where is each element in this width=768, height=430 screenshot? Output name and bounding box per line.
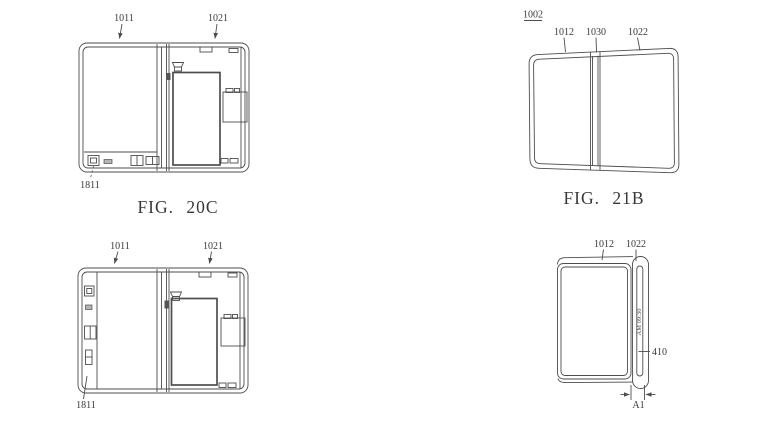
folding-line-1030 bbox=[591, 52, 601, 171]
device-outer-housing bbox=[78, 268, 248, 393]
ref-label-1030: 1030 bbox=[586, 27, 606, 38]
ref-label-a1: A1 bbox=[632, 400, 644, 411]
hinge-region bbox=[157, 269, 169, 392]
ref-label-1021: 1021 bbox=[208, 13, 228, 24]
edge-display-clock-text: AM 09:30 bbox=[636, 309, 643, 336]
leader-1011 bbox=[115, 252, 119, 264]
port-1811-inner bbox=[91, 158, 97, 163]
bottom-component-strip bbox=[84, 152, 159, 166]
ref-label-1011: 1011 bbox=[114, 13, 134, 24]
right-half-internals bbox=[165, 272, 246, 389]
side-module bbox=[223, 89, 247, 123]
leader-1012 bbox=[602, 250, 604, 261]
figure-side-view: 1012 1022 AM 09:30 410 A1 bbox=[558, 239, 668, 411]
ref-label-1811: 1811 bbox=[76, 400, 96, 411]
leader-1012 bbox=[564, 38, 566, 53]
camera-module bbox=[173, 63, 184, 72]
right-half-internals bbox=[167, 47, 248, 168]
side-module bbox=[221, 315, 245, 347]
bottom-port-a bbox=[221, 159, 228, 164]
device-outer-housing bbox=[79, 43, 249, 172]
device-outer-housing bbox=[529, 48, 679, 172]
ref-label-1012: 1012 bbox=[554, 27, 574, 38]
ref-label-1022: 1022 bbox=[628, 27, 648, 38]
top-right-port bbox=[229, 49, 238, 53]
bottom-port-a bbox=[219, 383, 226, 388]
ref-label-1021: 1021 bbox=[203, 241, 223, 252]
top-right-port bbox=[228, 273, 237, 277]
leader-1030 bbox=[596, 38, 597, 53]
bottom-port-b bbox=[228, 383, 236, 388]
dimension-a1: A1 bbox=[621, 385, 656, 411]
ref-label-1011: 1011 bbox=[110, 241, 130, 252]
hinge-connector bbox=[167, 73, 171, 80]
ref-label-1022: 1022 bbox=[626, 239, 646, 250]
leader-1021 bbox=[210, 252, 212, 264]
leader-1022 bbox=[638, 38, 641, 51]
port-1811-inner bbox=[87, 289, 92, 294]
top-notch bbox=[199, 272, 211, 277]
device-inner-frame bbox=[82, 272, 244, 389]
dual-port bbox=[85, 326, 97, 339]
figure-bottom-left: 1011 1021 1811 bbox=[76, 241, 248, 411]
patent-figures: 1011 1021 1811 bbox=[0, 0, 768, 430]
small-port bbox=[86, 305, 93, 310]
battery bbox=[172, 299, 218, 386]
top-notch bbox=[200, 47, 212, 52]
figure-21b: 1002 1012 1030 1022 FIG. 21B bbox=[523, 10, 679, 209]
ref-label-1012: 1012 bbox=[594, 239, 614, 250]
small-port bbox=[104, 160, 112, 164]
bottom-port-b bbox=[230, 159, 238, 164]
fig20c-caption: FIG. 20C bbox=[137, 197, 218, 217]
left-component-strip bbox=[85, 272, 98, 389]
front-cover-1012 bbox=[558, 264, 632, 380]
port-1811 bbox=[88, 156, 99, 166]
battery bbox=[173, 73, 220, 166]
ref-label-410: 410 bbox=[652, 347, 667, 358]
port-1811 bbox=[85, 286, 95, 296]
front-cover-inner bbox=[561, 267, 628, 376]
edge-display-410: AM 09:30 bbox=[633, 257, 649, 389]
display-inner-frame bbox=[534, 53, 675, 168]
ref-label-1002: 1002 bbox=[523, 10, 543, 21]
dual-port bbox=[131, 156, 143, 166]
leader-1011 bbox=[120, 24, 123, 39]
hinge-connector bbox=[165, 301, 169, 309]
patent-drawing-sheet: 1011 1021 1811 bbox=[0, 0, 768, 430]
folded-body bbox=[558, 257, 634, 383]
hinge-region bbox=[157, 44, 169, 171]
leader-1021 bbox=[215, 24, 217, 39]
stacked-port bbox=[86, 350, 93, 365]
figure-20c: 1011 1021 1811 bbox=[79, 13, 249, 217]
ref-label-1811: 1811 bbox=[80, 180, 100, 191]
fig21b-caption: FIG. 21B bbox=[563, 188, 644, 208]
